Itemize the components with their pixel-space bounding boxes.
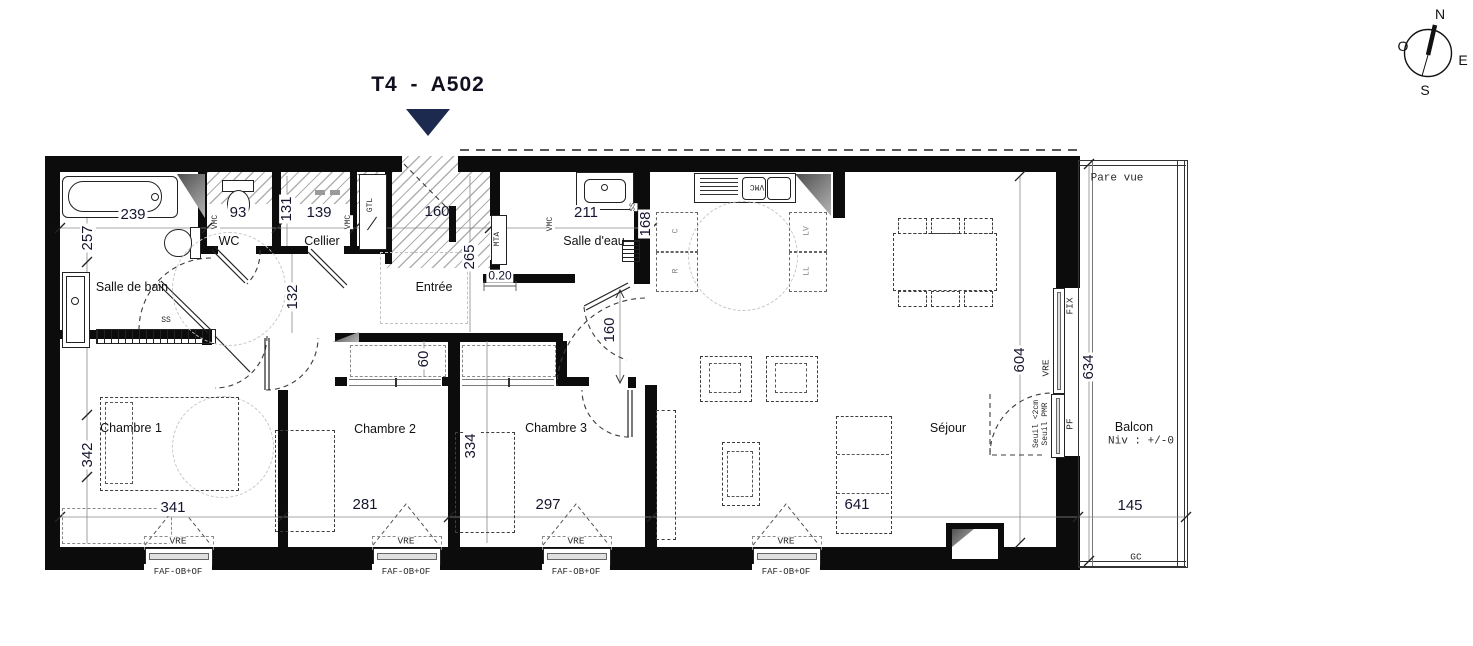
vmc-label-sde: VMC xyxy=(547,217,555,231)
bed-ch2 xyxy=(275,430,335,532)
window-type-label: VRE xyxy=(169,536,186,546)
dim-sde-width: 211 xyxy=(572,205,600,221)
turning-circle-bath xyxy=(172,232,286,346)
room-label-sejour: Séjour xyxy=(930,421,966,435)
bed-ch1 xyxy=(100,397,239,491)
window-spec-label: FAF-OB+OF xyxy=(144,564,212,593)
dining-table xyxy=(893,233,997,291)
sofa xyxy=(836,416,892,534)
dim-ch2-width: 281 xyxy=(350,497,379,513)
balcony-door xyxy=(1051,394,1065,458)
dim-sejour-width: 641 xyxy=(842,497,871,513)
dining-chair xyxy=(898,291,927,307)
pillar xyxy=(946,523,1004,565)
dim-kitchen-opening: 160 xyxy=(602,315,618,344)
dim-bath-side: 257 xyxy=(80,223,96,252)
window-spec-label: FAF-OB+OF xyxy=(542,564,610,593)
dim-entree-depth: 265 xyxy=(462,242,478,271)
dining-chair xyxy=(964,218,993,234)
dim-sejour-depth: 604 xyxy=(1012,345,1028,374)
seuil-pmr-label: Seuil PMR xyxy=(1042,402,1050,445)
coffee-table-a xyxy=(700,356,752,402)
turning-circle-kitchen xyxy=(688,201,798,311)
dim-bath-width: 239 xyxy=(118,207,147,223)
window-spec-label: FAF-OB+OF xyxy=(372,564,440,593)
vmc-label-cellier: VMC xyxy=(345,215,353,229)
dining-chair xyxy=(964,291,993,307)
mta-label: MTA xyxy=(494,232,502,246)
dim-cellier-width: 139 xyxy=(304,205,333,221)
appliance-label-lv: LV xyxy=(803,226,812,236)
room-label-wc: WC xyxy=(219,234,240,248)
dim-ch1-width: 341 xyxy=(158,500,187,516)
room-label-chambre-2: Chambre 2 xyxy=(354,422,416,436)
window-type-label: VRE xyxy=(567,536,584,546)
dim-131: 131 xyxy=(279,194,295,223)
tv-bench xyxy=(656,410,676,540)
window-ch1 xyxy=(145,548,213,565)
room-label-salle-deau: Salle d'eau xyxy=(563,234,624,248)
wardrobe-ch3 xyxy=(462,345,556,377)
fix-label: FIX xyxy=(1065,297,1075,314)
dim-wc-width: 93 xyxy=(228,205,249,221)
floor-plan-canvas: T4 - A502 N O E S xyxy=(0,0,1473,646)
window-type-label: VRE xyxy=(397,536,414,546)
cellier-shelf-b xyxy=(330,190,340,195)
window-type-label: VRE xyxy=(777,536,794,546)
appliance-label-ll: LL xyxy=(803,266,812,276)
balcony-level: Niv : +/-0 xyxy=(1108,437,1174,448)
appliance-label-c: C xyxy=(672,229,681,234)
ss-label-bath: SS xyxy=(161,317,171,325)
arc-ch2-door xyxy=(266,338,318,390)
dim-ch1-depth: 342 xyxy=(80,440,96,469)
dining-chair xyxy=(898,218,927,234)
room-label-cellier: Cellier xyxy=(304,234,339,248)
window-ch3 xyxy=(543,548,611,565)
seuil-2cm-label: Seuil <2cm xyxy=(1033,400,1041,448)
gc-label: GC xyxy=(1130,552,1141,562)
dim-niche-depth: 60 xyxy=(416,349,432,370)
dim-wall-thickness: 0.20 xyxy=(486,270,513,283)
room-label-chambre-3: Chambre 3 xyxy=(525,421,587,435)
bath-vanity xyxy=(62,272,90,348)
dim-hall-depth: 132 xyxy=(285,282,301,311)
room-label-salle-de-bain: Salle de bain xyxy=(96,280,168,294)
fixed-window-sejour xyxy=(1053,288,1065,394)
dim-entree-width: 160 xyxy=(422,204,451,220)
dim-balcon-width: 145 xyxy=(1115,498,1144,514)
dining-chair xyxy=(931,291,960,307)
vmc-label-kitchen: VMC xyxy=(750,182,764,190)
dining-chair xyxy=(931,218,960,234)
kitchen-sink-unit xyxy=(694,173,796,203)
window-spec-label: FAF-OB+OF xyxy=(752,564,820,593)
coffee-table-b xyxy=(766,356,818,402)
cellier-shelf-a xyxy=(315,190,325,195)
window-ch2 xyxy=(373,548,441,565)
appliance-label-r: R xyxy=(672,269,681,274)
room-label-entree: Entrée xyxy=(416,280,453,294)
dim-ch3-width: 297 xyxy=(533,497,562,513)
window-sejour xyxy=(753,548,821,565)
gtl-label: GTL xyxy=(367,198,375,212)
ss-label-sde: SS xyxy=(631,203,638,211)
dim-sde-depth: 168 xyxy=(638,209,654,238)
armchair xyxy=(722,442,760,506)
pf-label: PF xyxy=(1065,418,1075,429)
vre-label-right: VRE xyxy=(1041,359,1051,376)
room-label-balcon: Balcon xyxy=(1115,420,1153,434)
dim-balcon-depth: 634 xyxy=(1081,352,1097,381)
vmc-label-bath: VMC xyxy=(212,215,220,229)
arc-ch3-door xyxy=(582,390,629,437)
pare-vue-label: Pare vue xyxy=(1091,174,1144,185)
dim-ch23-depth: 334 xyxy=(463,431,479,460)
room-label-chambre-1: Chambre 1 xyxy=(100,421,162,435)
